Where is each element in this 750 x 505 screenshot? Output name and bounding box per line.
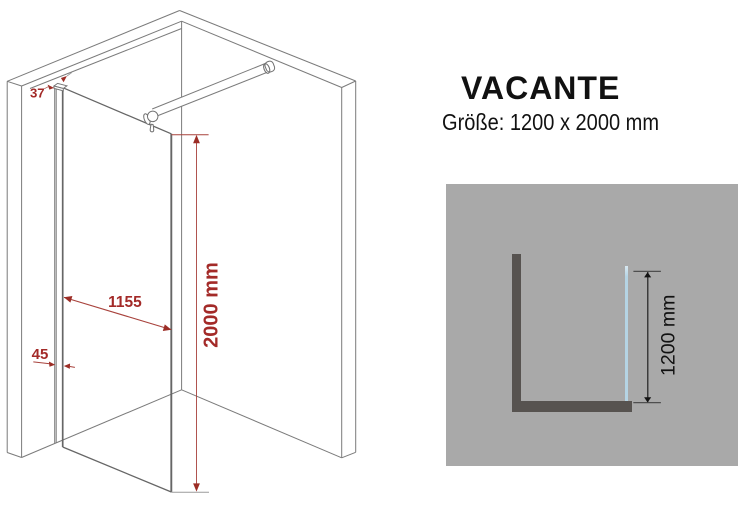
svg-text:37: 37 bbox=[30, 86, 45, 101]
svg-text:45: 45 bbox=[32, 346, 49, 363]
svg-text:2000 mm: 2000 mm bbox=[200, 262, 222, 348]
svg-text:1155: 1155 bbox=[108, 294, 142, 311]
svg-text:1200 mm: 1200 mm bbox=[658, 295, 680, 376]
